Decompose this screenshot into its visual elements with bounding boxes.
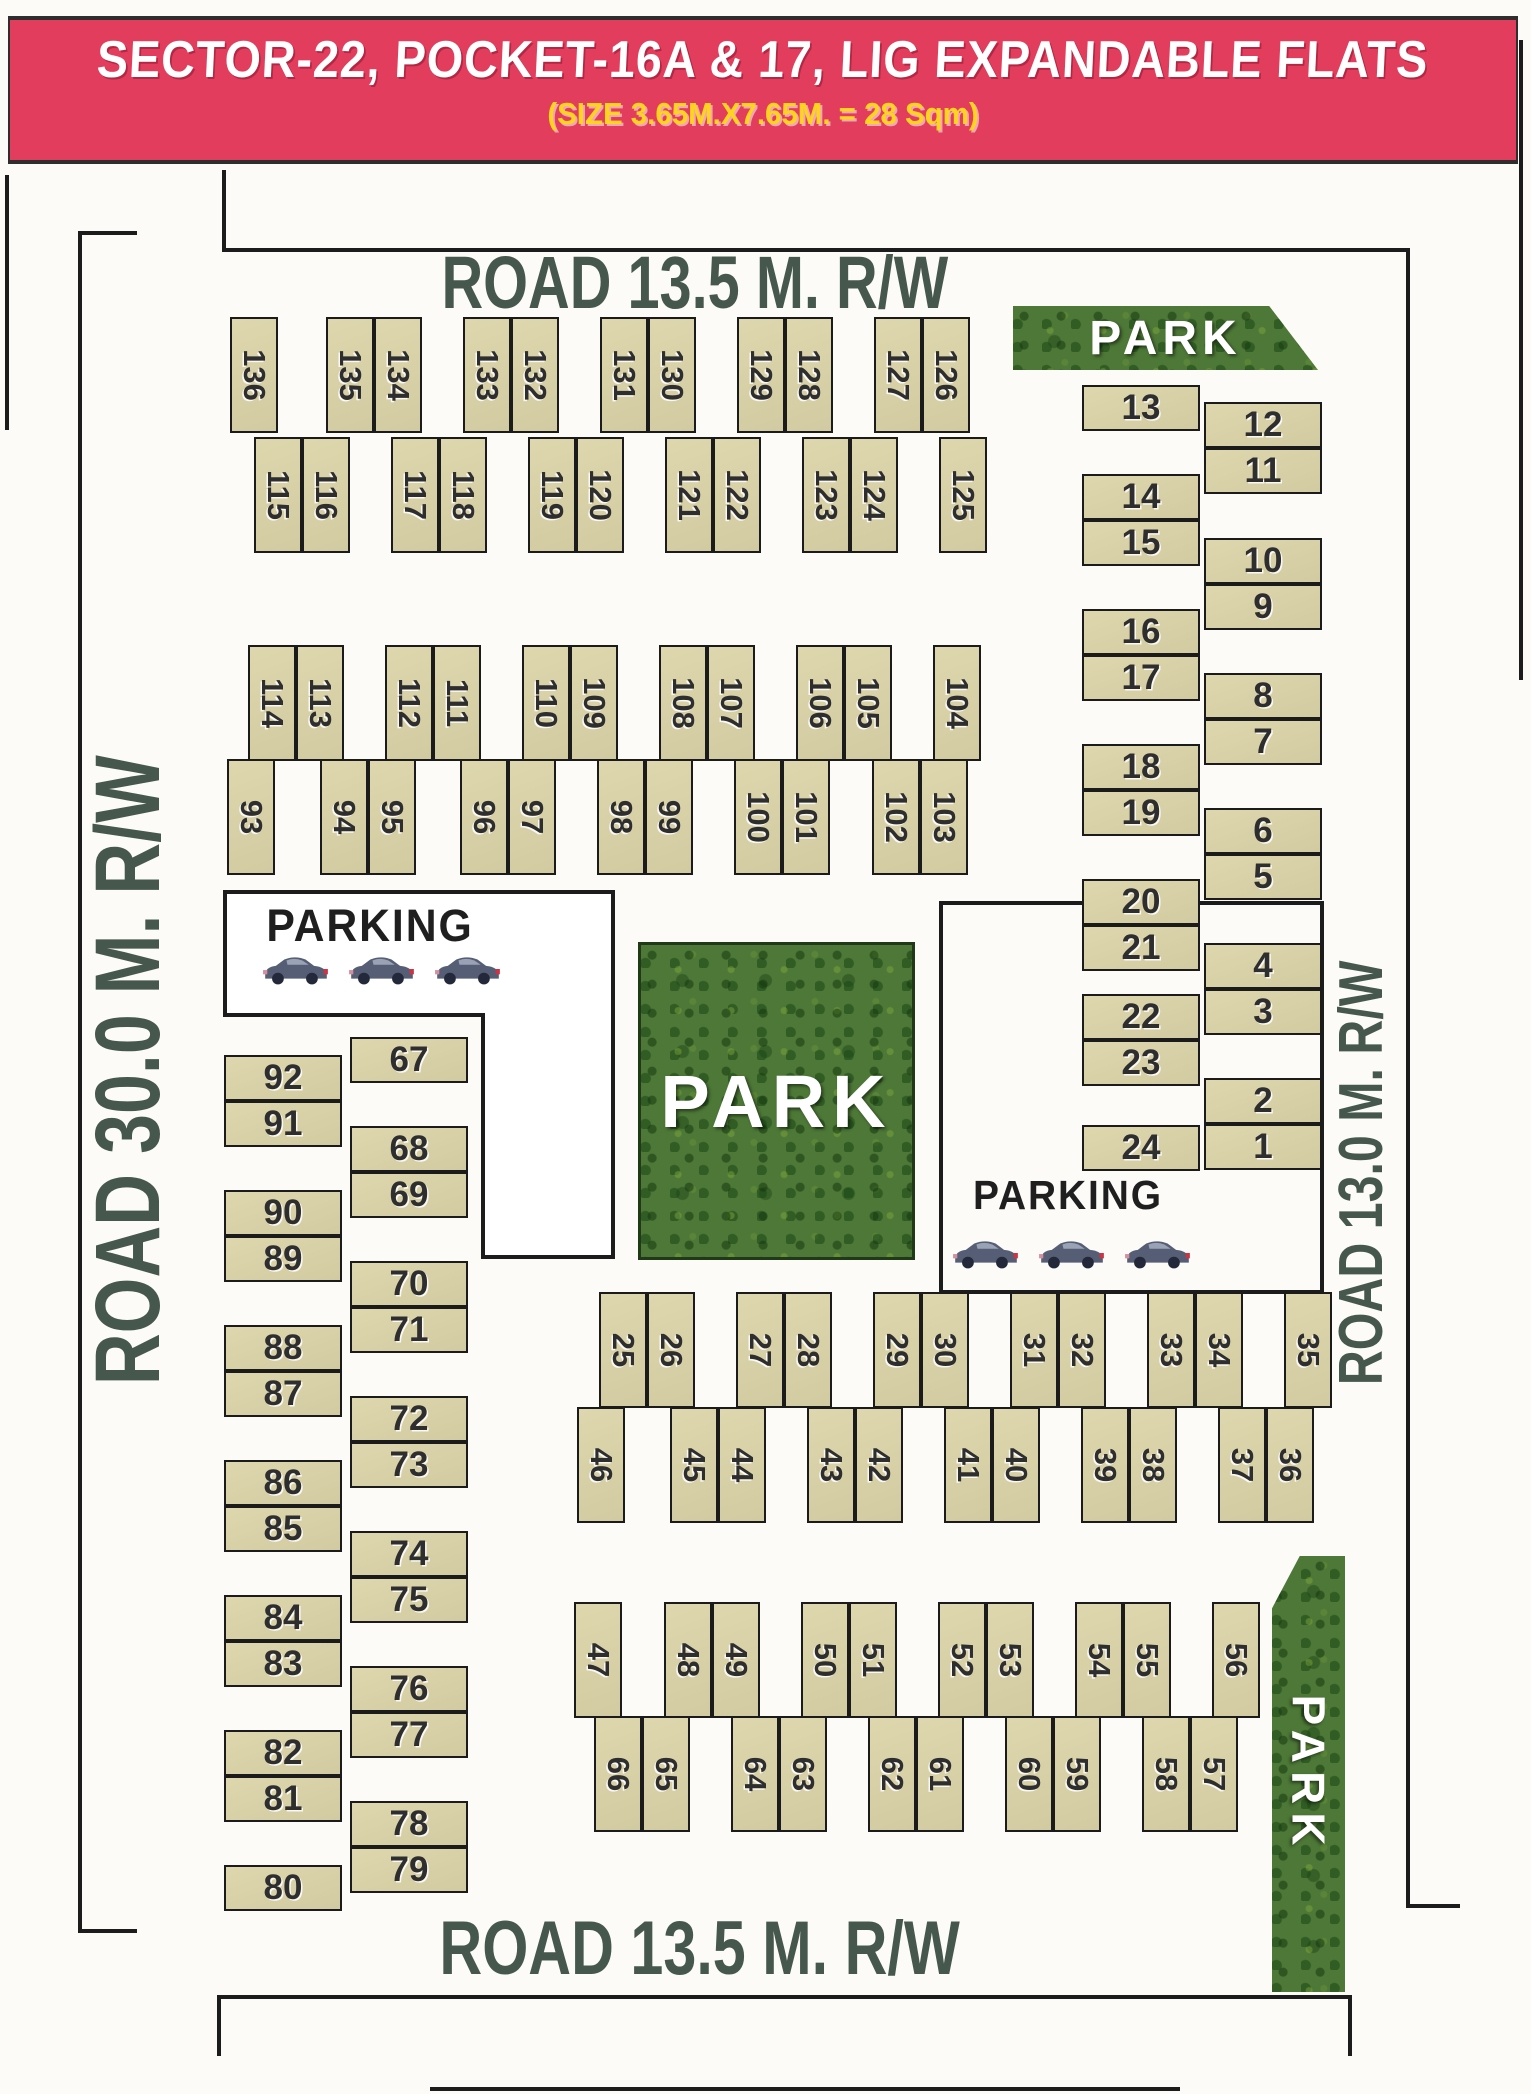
plot-132: 132: [511, 317, 559, 433]
plot-number: 108: [665, 677, 701, 729]
plot-number: 26: [653, 1333, 689, 1367]
plot-16: 16: [1082, 609, 1200, 655]
plot-number: 77: [390, 1715, 429, 1755]
plot-122: 122: [713, 437, 761, 553]
plot-number: 34: [1201, 1333, 1237, 1367]
plot-89: 89: [224, 1236, 342, 1282]
plot-56: 56: [1212, 1602, 1260, 1718]
plot-119: 119: [528, 437, 576, 553]
plot-53: 53: [986, 1602, 1034, 1718]
plot-number: 85: [264, 1509, 303, 1549]
plot-109: 109: [570, 645, 618, 761]
plot-62: 62: [868, 1716, 916, 1832]
plot-number: 6: [1253, 811, 1272, 851]
plot-number: 135: [332, 349, 368, 401]
plot-number: 11: [1245, 451, 1282, 491]
plot-number: 62: [874, 1757, 910, 1791]
plot-55: 55: [1123, 1602, 1171, 1718]
car-icon: [262, 952, 330, 986]
plot-number: 95: [374, 800, 410, 834]
plot-number: 23: [1122, 1043, 1161, 1083]
road-label-bottom-text: ROAD 13.5 M. R/W: [440, 1914, 960, 1984]
plot-number: 100: [740, 791, 776, 843]
plot-number: 10: [1244, 541, 1283, 581]
plot-43: 43: [807, 1407, 855, 1523]
plot-number: 121: [671, 469, 707, 521]
plot-131: 131: [600, 317, 648, 433]
plot-number: 102: [878, 791, 914, 843]
plot-35: 35: [1284, 1292, 1332, 1408]
plot-number: 124: [856, 469, 892, 521]
plot-number: 96: [466, 800, 502, 834]
plot-51: 51: [849, 1602, 897, 1718]
plot-number: 65: [648, 1757, 684, 1791]
plot-number: 64: [737, 1757, 773, 1791]
plot-80: 80: [224, 1865, 342, 1911]
plot-number: 56: [1218, 1643, 1254, 1677]
park-area-bottom-right: PARK: [1272, 1556, 1345, 1992]
plot-number: 105: [850, 677, 886, 729]
plot-57: 57: [1190, 1716, 1238, 1832]
plot-number: 51: [855, 1643, 891, 1677]
plot-41: 41: [944, 1407, 992, 1523]
plot-number: 52: [944, 1643, 980, 1677]
plot-93: 93: [227, 759, 275, 875]
plot-number: 117: [397, 470, 433, 520]
plot-4: 4: [1204, 943, 1322, 989]
plot-25: 25: [599, 1292, 647, 1408]
plot-15: 15: [1082, 520, 1200, 566]
plot-45: 45: [670, 1407, 718, 1523]
plot-number: 28: [790, 1333, 826, 1367]
plot-50: 50: [801, 1602, 849, 1718]
plot-number: 110: [528, 678, 564, 728]
plot-83: 83: [224, 1641, 342, 1687]
plot-number: 103: [926, 791, 962, 843]
plot-number: 60: [1011, 1757, 1047, 1791]
plot-number: 80: [264, 1868, 303, 1908]
plot-number: 104: [939, 677, 975, 729]
plot-number: 15: [1122, 523, 1161, 563]
plot-1: 1: [1204, 1124, 1322, 1170]
plot-number: 67: [390, 1040, 429, 1080]
plot-number: 129: [743, 349, 779, 401]
car-icon: [952, 1236, 1020, 1270]
plot-6: 6: [1204, 808, 1322, 854]
plot-22: 22: [1082, 994, 1200, 1040]
plot-40: 40: [992, 1407, 1040, 1523]
plot-10: 10: [1204, 538, 1322, 584]
plot-7: 7: [1204, 719, 1322, 765]
plot-number: 7: [1253, 722, 1272, 762]
plot-number: 123: [808, 469, 844, 521]
park-area-top-right: PARK: [1013, 306, 1318, 370]
plot-number: 32: [1064, 1333, 1100, 1367]
plot-82: 82: [224, 1730, 342, 1776]
plot-number: 75: [390, 1580, 429, 1620]
plot-number: 92: [264, 1058, 303, 1098]
plot-12: 12: [1204, 402, 1322, 448]
plot-number: 58: [1148, 1757, 1184, 1791]
plot-number: 31: [1016, 1333, 1052, 1367]
road-label-top: ROAD 13.5 M. R/W: [345, 248, 1045, 318]
plot-number: 107: [713, 677, 749, 729]
plot-number: 112: [391, 678, 427, 728]
plot-number: 74: [390, 1534, 429, 1574]
plot-number: 90: [264, 1193, 303, 1233]
plot-39: 39: [1081, 1407, 1129, 1523]
site-plan-page: SECTOR-22, POCKET-16A & 17, LIG EXPANDAB…: [0, 0, 1531, 2094]
plot-number: 40: [998, 1448, 1034, 1482]
car-icon: [1038, 1236, 1106, 1270]
plot-126: 126: [922, 317, 970, 433]
plot-number: 98: [603, 800, 639, 834]
plot-number: 88: [264, 1328, 303, 1368]
plot-32: 32: [1058, 1292, 1106, 1408]
plot-68: 68: [350, 1126, 468, 1172]
plot-88: 88: [224, 1325, 342, 1371]
plot-5: 5: [1204, 854, 1322, 900]
plot-9: 9: [1204, 584, 1322, 630]
plot-number: 47: [580, 1643, 616, 1677]
plot-number: 91: [264, 1104, 303, 1144]
plot-84: 84: [224, 1595, 342, 1641]
plot-108: 108: [659, 645, 707, 761]
plot-86: 86: [224, 1460, 342, 1506]
plot-74: 74: [350, 1531, 468, 1577]
plot-number: 106: [802, 677, 838, 729]
plot-number: 131: [606, 349, 642, 401]
plot-number: 48: [670, 1643, 706, 1677]
plot-number: 66: [600, 1757, 636, 1791]
plot-117: 117: [391, 437, 439, 553]
plot-133: 133: [463, 317, 511, 433]
plot-23: 23: [1082, 1040, 1200, 1086]
plot-123: 123: [802, 437, 850, 553]
plot-27: 27: [736, 1292, 784, 1408]
plot-102: 102: [872, 759, 920, 875]
park-area-central: PARK: [638, 942, 915, 1260]
plot-number: 82: [264, 1733, 303, 1773]
plot-30: 30: [921, 1292, 969, 1408]
plot-number: 2: [1253, 1081, 1272, 1121]
plot-104: 104: [933, 645, 981, 761]
plot-number: 76: [390, 1669, 429, 1709]
plot-number: 118: [445, 470, 481, 520]
plot-77: 77: [350, 1712, 468, 1758]
plot-number: 55: [1129, 1643, 1165, 1677]
plot-number: 27: [742, 1333, 778, 1367]
car-icon: [1124, 1236, 1192, 1270]
plot-number: 83: [264, 1644, 303, 1684]
plot-number: 5: [1253, 857, 1272, 897]
plot-8: 8: [1204, 673, 1322, 719]
plot-number: 73: [390, 1445, 429, 1485]
plot-number: 9: [1253, 587, 1272, 627]
plot-34: 34: [1195, 1292, 1243, 1408]
plot-number: 70: [390, 1264, 429, 1304]
plot-14: 14: [1082, 474, 1200, 520]
plot-number: 132: [517, 349, 553, 401]
plot-number: 22: [1122, 997, 1161, 1037]
plot-number: 43: [813, 1448, 849, 1482]
plot-29: 29: [873, 1292, 921, 1408]
plot-95: 95: [368, 759, 416, 875]
plot-number: 57: [1196, 1757, 1232, 1791]
plot-20: 20: [1082, 879, 1200, 925]
plot-number: 29: [879, 1333, 915, 1367]
plot-number: 44: [724, 1448, 760, 1482]
plot-11: 11: [1204, 448, 1322, 494]
plot-118: 118: [439, 437, 487, 553]
plot-78: 78: [350, 1801, 468, 1847]
plot-number: 36: [1272, 1448, 1308, 1482]
plot-112: 112: [385, 645, 433, 761]
plot-number: 115: [260, 470, 296, 520]
plot-101: 101: [782, 759, 830, 875]
plot-116: 116: [302, 437, 350, 553]
plot-96: 96: [460, 759, 508, 875]
parking-right-cars: [952, 1236, 1192, 1270]
plot-17: 17: [1082, 655, 1200, 701]
plot-24: 24: [1082, 1125, 1200, 1171]
plot-number: 25: [605, 1333, 641, 1367]
plot-number: 46: [583, 1448, 619, 1482]
plot-number: 87: [264, 1374, 303, 1414]
plot-127: 127: [874, 317, 922, 433]
plot-number: 39: [1087, 1448, 1123, 1482]
plot-number: 38: [1135, 1448, 1171, 1482]
plot-76: 76: [350, 1666, 468, 1712]
plot-number: 93: [233, 800, 269, 834]
plot-81: 81: [224, 1776, 342, 1822]
plot-number: 1: [1253, 1127, 1272, 1167]
plot-46: 46: [577, 1407, 625, 1523]
plot-98: 98: [597, 759, 645, 875]
plot-85: 85: [224, 1506, 342, 1552]
plot-number: 136: [236, 349, 272, 401]
plot-number: 109: [576, 677, 612, 729]
plot-106: 106: [796, 645, 844, 761]
plot-91: 91: [224, 1101, 342, 1147]
road-label-top-text: ROAD 13.5 M. R/W: [442, 248, 949, 318]
plot-21: 21: [1082, 925, 1200, 971]
plot-38: 38: [1129, 1407, 1177, 1523]
plot-number: 122: [719, 469, 755, 521]
plot-48: 48: [664, 1602, 712, 1718]
plot-120: 120: [576, 437, 624, 553]
plot-number: 41: [950, 1448, 986, 1482]
car-icon: [434, 952, 502, 986]
plot-number: 89: [264, 1239, 303, 1279]
plot-124: 124: [850, 437, 898, 553]
plot-number: 14: [1122, 477, 1161, 517]
plot-99: 99: [645, 759, 693, 875]
bottom-road-border: [219, 1997, 1350, 2056]
plot-49: 49: [712, 1602, 760, 1718]
plot-number: 99: [651, 800, 687, 834]
plot-69: 69: [350, 1172, 468, 1218]
plot-64: 64: [731, 1716, 779, 1832]
plot-number: 81: [264, 1779, 303, 1819]
plot-2: 2: [1204, 1078, 1322, 1124]
plot-59: 59: [1053, 1716, 1101, 1832]
plot-number: 54: [1081, 1643, 1117, 1677]
plot-26: 26: [647, 1292, 695, 1408]
plot-42: 42: [855, 1407, 903, 1523]
plot-110: 110: [522, 645, 570, 761]
plot-70: 70: [350, 1261, 468, 1307]
plot-90: 90: [224, 1190, 342, 1236]
plot-111: 111: [433, 645, 481, 761]
plot-54: 54: [1075, 1602, 1123, 1718]
plot-72: 72: [350, 1396, 468, 1442]
plot-number: 3: [1253, 992, 1272, 1032]
car-icon: [348, 952, 416, 986]
plot-60: 60: [1005, 1716, 1053, 1832]
plot-121: 121: [665, 437, 713, 553]
plot-number: 50: [807, 1643, 843, 1677]
plot-number: 30: [927, 1333, 963, 1367]
plot-number: 16: [1122, 612, 1161, 652]
plot-number: 97: [514, 800, 550, 834]
plot-103: 103: [920, 759, 968, 875]
plot-130: 130: [648, 317, 696, 433]
road-label-left-text: ROAD 30.0 M. R/W: [78, 755, 178, 1385]
plot-94: 94: [320, 759, 368, 875]
plot-52: 52: [938, 1602, 986, 1718]
plot-number: 116: [308, 470, 344, 520]
road-label-bottom: ROAD 13.5 M. R/W: [350, 1914, 1050, 1984]
plot-63: 63: [779, 1716, 827, 1832]
plot-number: 94: [326, 800, 362, 834]
plot-number: 13: [1122, 388, 1161, 428]
plot-115: 115: [254, 437, 302, 553]
plot-number: 19: [1122, 793, 1161, 833]
plot-number: 130: [654, 349, 690, 401]
plot-number: 71: [390, 1310, 429, 1350]
plot-136: 136: [230, 317, 278, 433]
plot-number: 59: [1059, 1757, 1095, 1791]
plot-105: 105: [844, 645, 892, 761]
plot-number: 61: [922, 1757, 958, 1791]
plot-47: 47: [574, 1602, 622, 1718]
plot-33: 33: [1147, 1292, 1195, 1408]
parking-left-label: PARKING: [251, 900, 489, 952]
road-label-right-text: ROAD 13.0 M. R/W: [1324, 961, 1400, 1386]
parking-right-label: PARKING: [954, 1172, 1182, 1219]
plot-number: 133: [469, 349, 505, 401]
plot-58: 58: [1142, 1716, 1190, 1832]
plot-number: 49: [718, 1643, 754, 1677]
plot-number: 127: [880, 349, 916, 401]
plot-number: 45: [676, 1448, 712, 1482]
parking-left-cars: [262, 952, 502, 986]
plot-37: 37: [1218, 1407, 1266, 1523]
plot-107: 107: [707, 645, 755, 761]
plot-79: 79: [350, 1847, 468, 1893]
plot-18: 18: [1082, 744, 1200, 790]
plot-number: 78: [390, 1804, 429, 1844]
plot-87: 87: [224, 1371, 342, 1417]
plot-number: 4: [1253, 946, 1272, 986]
plot-number: 33: [1153, 1333, 1189, 1367]
plot-114: 114: [248, 645, 296, 761]
plot-number: 21: [1122, 928, 1161, 968]
plot-28: 28: [784, 1292, 832, 1408]
plot-number: 120: [582, 469, 618, 521]
plot-66: 66: [594, 1716, 642, 1832]
plot-number: 119: [534, 470, 570, 520]
plot-number: 128: [791, 349, 827, 401]
plot-number: 63: [785, 1757, 821, 1791]
plot-61: 61: [916, 1716, 964, 1832]
plot-67: 67: [350, 1037, 468, 1083]
plot-number: 35: [1290, 1333, 1326, 1367]
plot-number: 24: [1122, 1128, 1161, 1168]
plot-97: 97: [508, 759, 556, 875]
plot-number: 68: [390, 1129, 429, 1169]
plot-75: 75: [350, 1577, 468, 1623]
plot-13: 13: [1082, 385, 1200, 431]
plot-number: 114: [254, 678, 290, 728]
plot-number: 17: [1122, 658, 1161, 698]
plot-44: 44: [718, 1407, 766, 1523]
plot-number: 79: [390, 1850, 429, 1890]
plot-number: 101: [788, 791, 824, 843]
plot-134: 134: [374, 317, 422, 433]
plot-129: 129: [737, 317, 785, 433]
plot-number: 42: [861, 1448, 897, 1482]
plot-65: 65: [642, 1716, 690, 1832]
plot-number: 69: [390, 1175, 429, 1215]
plot-number: 37: [1224, 1448, 1260, 1482]
plot-number: 113: [302, 678, 338, 728]
road-label-left: ROAD 30.0 M. R/W: [78, 635, 178, 1505]
plot-71: 71: [350, 1307, 468, 1353]
plot-100: 100: [734, 759, 782, 875]
plot-number: 53: [992, 1643, 1028, 1677]
plot-number: 84: [264, 1598, 303, 1638]
plot-number: 12: [1244, 405, 1283, 445]
park-label: PARK: [660, 1059, 892, 1144]
park-label: PARK: [1282, 1695, 1336, 1854]
plot-73: 73: [350, 1442, 468, 1488]
park-label: PARK: [1089, 311, 1241, 366]
plot-31: 31: [1010, 1292, 1058, 1408]
plot-92: 92: [224, 1055, 342, 1101]
plot-113: 113: [296, 645, 344, 761]
plot-128: 128: [785, 317, 833, 433]
plot-number: 20: [1122, 882, 1161, 922]
road-label-right: ROAD 13.0 M. R/W: [1324, 853, 1400, 1493]
plot-number: 134: [380, 349, 416, 401]
plot-125: 125: [939, 437, 987, 553]
plot-number: 8: [1253, 676, 1272, 716]
plot-number: 86: [264, 1463, 303, 1503]
plot-19: 19: [1082, 790, 1200, 836]
plot-number: 111: [439, 679, 475, 727]
plot-number: 125: [945, 469, 981, 521]
plot-135: 135: [326, 317, 374, 433]
plot-number: 126: [928, 349, 964, 401]
plot-3: 3: [1204, 989, 1322, 1035]
plot-number: 18: [1122, 747, 1161, 787]
plot-number: 72: [390, 1399, 429, 1439]
plot-36: 36: [1266, 1407, 1314, 1523]
